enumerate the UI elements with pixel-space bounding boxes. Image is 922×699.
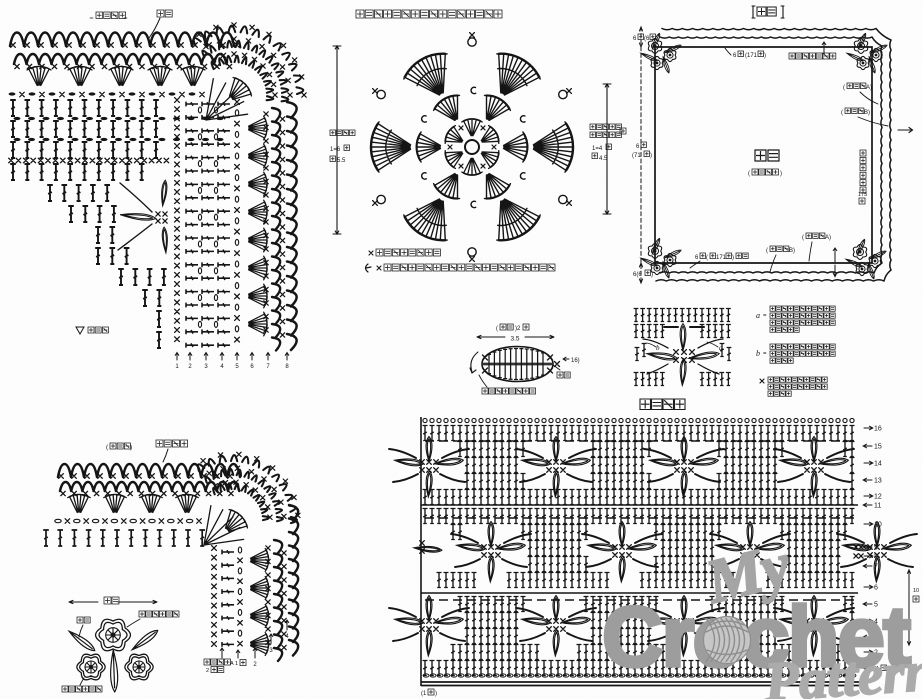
svg-text:10: 10 — [913, 588, 919, 594]
svg-text:(: ( — [802, 235, 804, 241]
svg-text:A): A) — [866, 85, 872, 91]
svg-text:2: 2 — [206, 668, 209, 674]
svg-text:(71: (71 — [632, 153, 641, 159]
svg-text:10: 10 — [874, 522, 882, 529]
svg-text:)2: )2 — [515, 326, 521, 332]
svg-text:16): 16) — [571, 358, 580, 364]
svg-text:171: 171 — [716, 255, 727, 261]
svg-text:(: ( — [748, 171, 750, 177]
svg-text:A): A) — [825, 235, 831, 241]
svg-text:): ) — [732, 255, 734, 261]
svg-text:(: ( — [766, 248, 768, 254]
svg-text:3.5: 3.5 — [510, 336, 519, 343]
svg-text:11: 11 — [874, 503, 881, 510]
svg-text:): ) — [650, 153, 652, 159]
svg-text:8: 8 — [874, 554, 878, 561]
svg-text:A: A — [230, 661, 234, 667]
svg-text:7: 7 — [874, 564, 878, 571]
svg-text:(1: (1 — [421, 691, 427, 697]
svg-text:175: 175 — [858, 192, 867, 198]
svg-text:12: 12 — [874, 494, 882, 501]
svg-text:): ) — [651, 272, 653, 278]
svg-text:): ) — [780, 171, 782, 177]
svg-text:): ) — [130, 444, 132, 451]
svg-text:): ) — [435, 691, 437, 697]
svg-text:(: ( — [496, 326, 498, 332]
svg-text:=: = — [763, 351, 767, 357]
svg-text:1=6: 1=6 — [330, 147, 341, 153]
svg-text:16: 16 — [874, 426, 882, 433]
svg-text:15: 15 — [874, 444, 882, 451]
svg-text:14: 14 — [874, 461, 882, 468]
svg-text:(: ( — [843, 85, 845, 91]
svg-text:a: a — [719, 344, 723, 352]
svg-text:=: = — [763, 313, 767, 319]
svg-text:a: a — [756, 311, 760, 320]
svg-text:(171: (171 — [745, 53, 758, 59]
svg-text:B): B) — [789, 248, 795, 254]
svg-text:B): B) — [864, 110, 870, 116]
svg-text:): ) — [764, 53, 766, 59]
svg-text:(: ( — [841, 110, 843, 116]
svg-text:5.5: 5.5 — [337, 158, 346, 164]
svg-text:13: 13 — [874, 478, 882, 485]
svg-text:1=4: 1=4 — [592, 146, 603, 152]
svg-text:b: b — [756, 349, 760, 358]
svg-text:4.5: 4.5 — [599, 156, 608, 162]
svg-text:b: b — [656, 344, 660, 352]
svg-text:(: ( — [706, 255, 708, 261]
svg-text:1: 1 — [235, 661, 238, 667]
svg-text:9: 9 — [874, 545, 878, 552]
svg-text:6(6: 6(6 — [633, 272, 642, 278]
